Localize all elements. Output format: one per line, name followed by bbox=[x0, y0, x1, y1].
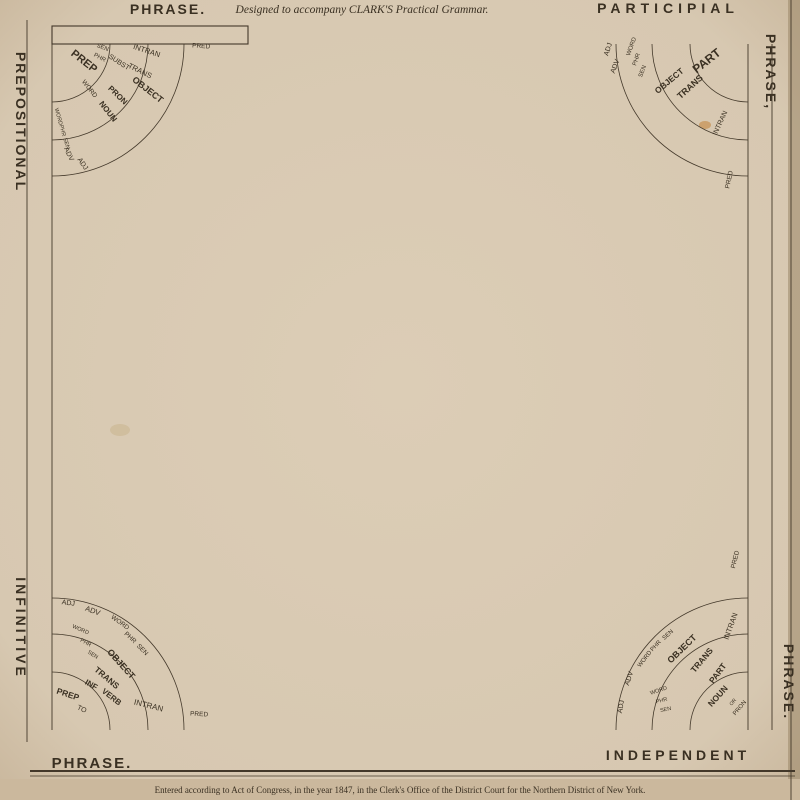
edge-label-phrase: PHRASE. bbox=[781, 644, 797, 720]
page-title-phrase-bottom: PHRASE. bbox=[52, 755, 133, 772]
page-title-phrase-left: PHRASE. bbox=[130, 1, 206, 17]
copyright-line: Entered according to Act of Congress, in… bbox=[155, 785, 646, 795]
paper-stain bbox=[110, 424, 130, 436]
grammar-wheel-diagram: PREPWORDSENPHRSUBSTINTRANTRANSPREDPRONNO… bbox=[0, 0, 800, 800]
infinitive-fan-label-pred: PRED bbox=[190, 711, 209, 719]
page-title-independent: INDEPENDENT bbox=[606, 747, 750, 763]
page-subtitle: Designed to accompany CLARK'S Practical … bbox=[235, 4, 489, 16]
paper-background bbox=[0, 0, 800, 800]
grammar-chart-page: PREPWORDSENPHRSUBSTINTRANTRANSPREDPRONNO… bbox=[0, 0, 800, 800]
edge-label-phrase: PHRASE, bbox=[763, 34, 779, 110]
page-title-participial: PARTICIPIAL bbox=[597, 0, 739, 16]
